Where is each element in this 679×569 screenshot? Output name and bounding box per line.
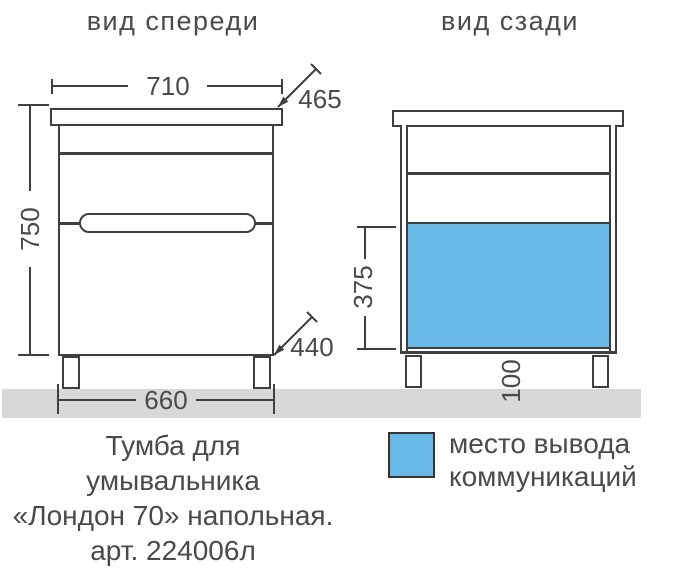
floor-strip bbox=[2, 389, 641, 418]
back-side-panel-right bbox=[609, 125, 617, 354]
technical-drawing: вид спереди вид сзади 710 750 465 440 66… bbox=[0, 0, 679, 569]
front-cabinet-body bbox=[58, 124, 274, 356]
dim-375-tick-bottom bbox=[357, 348, 396, 350]
legend-color-swatch bbox=[388, 432, 435, 478]
back-shelf-line bbox=[408, 172, 609, 175]
dim-750-tick-bottom bbox=[18, 354, 49, 356]
front-drawer-handle bbox=[79, 213, 256, 233]
dim-100-label: 100 bbox=[498, 341, 524, 421]
back-side-panel-left bbox=[400, 125, 408, 354]
caption-line-1: Тумба для bbox=[8, 428, 338, 463]
dim-660-line-right bbox=[196, 399, 274, 401]
back-view-title: вид сзади bbox=[415, 6, 605, 37]
front-leg-left bbox=[62, 356, 80, 389]
caption-line-4: арт. 224006л bbox=[8, 533, 338, 568]
front-drawer-divider bbox=[60, 152, 272, 155]
dim-750-tick-top bbox=[18, 104, 49, 106]
back-leg-right bbox=[592, 355, 609, 388]
communications-area bbox=[408, 222, 609, 349]
dim-750-label: 750 bbox=[17, 189, 43, 269]
legend-text-line2: коммуникаций bbox=[449, 461, 637, 493]
back-leg-left bbox=[405, 355, 422, 388]
dim-750-line-top bbox=[29, 105, 31, 191]
dim-660-label: 660 bbox=[126, 387, 206, 413]
dim-375-label: 375 bbox=[350, 247, 376, 327]
dim-660-line-left bbox=[58, 399, 136, 401]
dim-465-label: 465 bbox=[280, 86, 360, 112]
dim-750-line-bottom bbox=[29, 267, 31, 355]
product-caption: Тумба для умывальника «Лондон 70» наполь… bbox=[8, 428, 338, 568]
dim-375-tick-top bbox=[357, 226, 396, 228]
legend-text-line1: место вывода bbox=[449, 428, 630, 460]
dim-710-label: 710 bbox=[128, 73, 208, 99]
caption-line-2: умывальника bbox=[8, 463, 338, 498]
caption-line-3: «Лондон 70» напольная. bbox=[8, 498, 338, 533]
front-view-title: вид спереди bbox=[78, 6, 268, 37]
back-countertop bbox=[392, 110, 624, 127]
dim-440-label: 440 bbox=[272, 334, 352, 360]
dim-710-line-right bbox=[207, 85, 282, 87]
dim-710-line-left bbox=[52, 85, 128, 87]
